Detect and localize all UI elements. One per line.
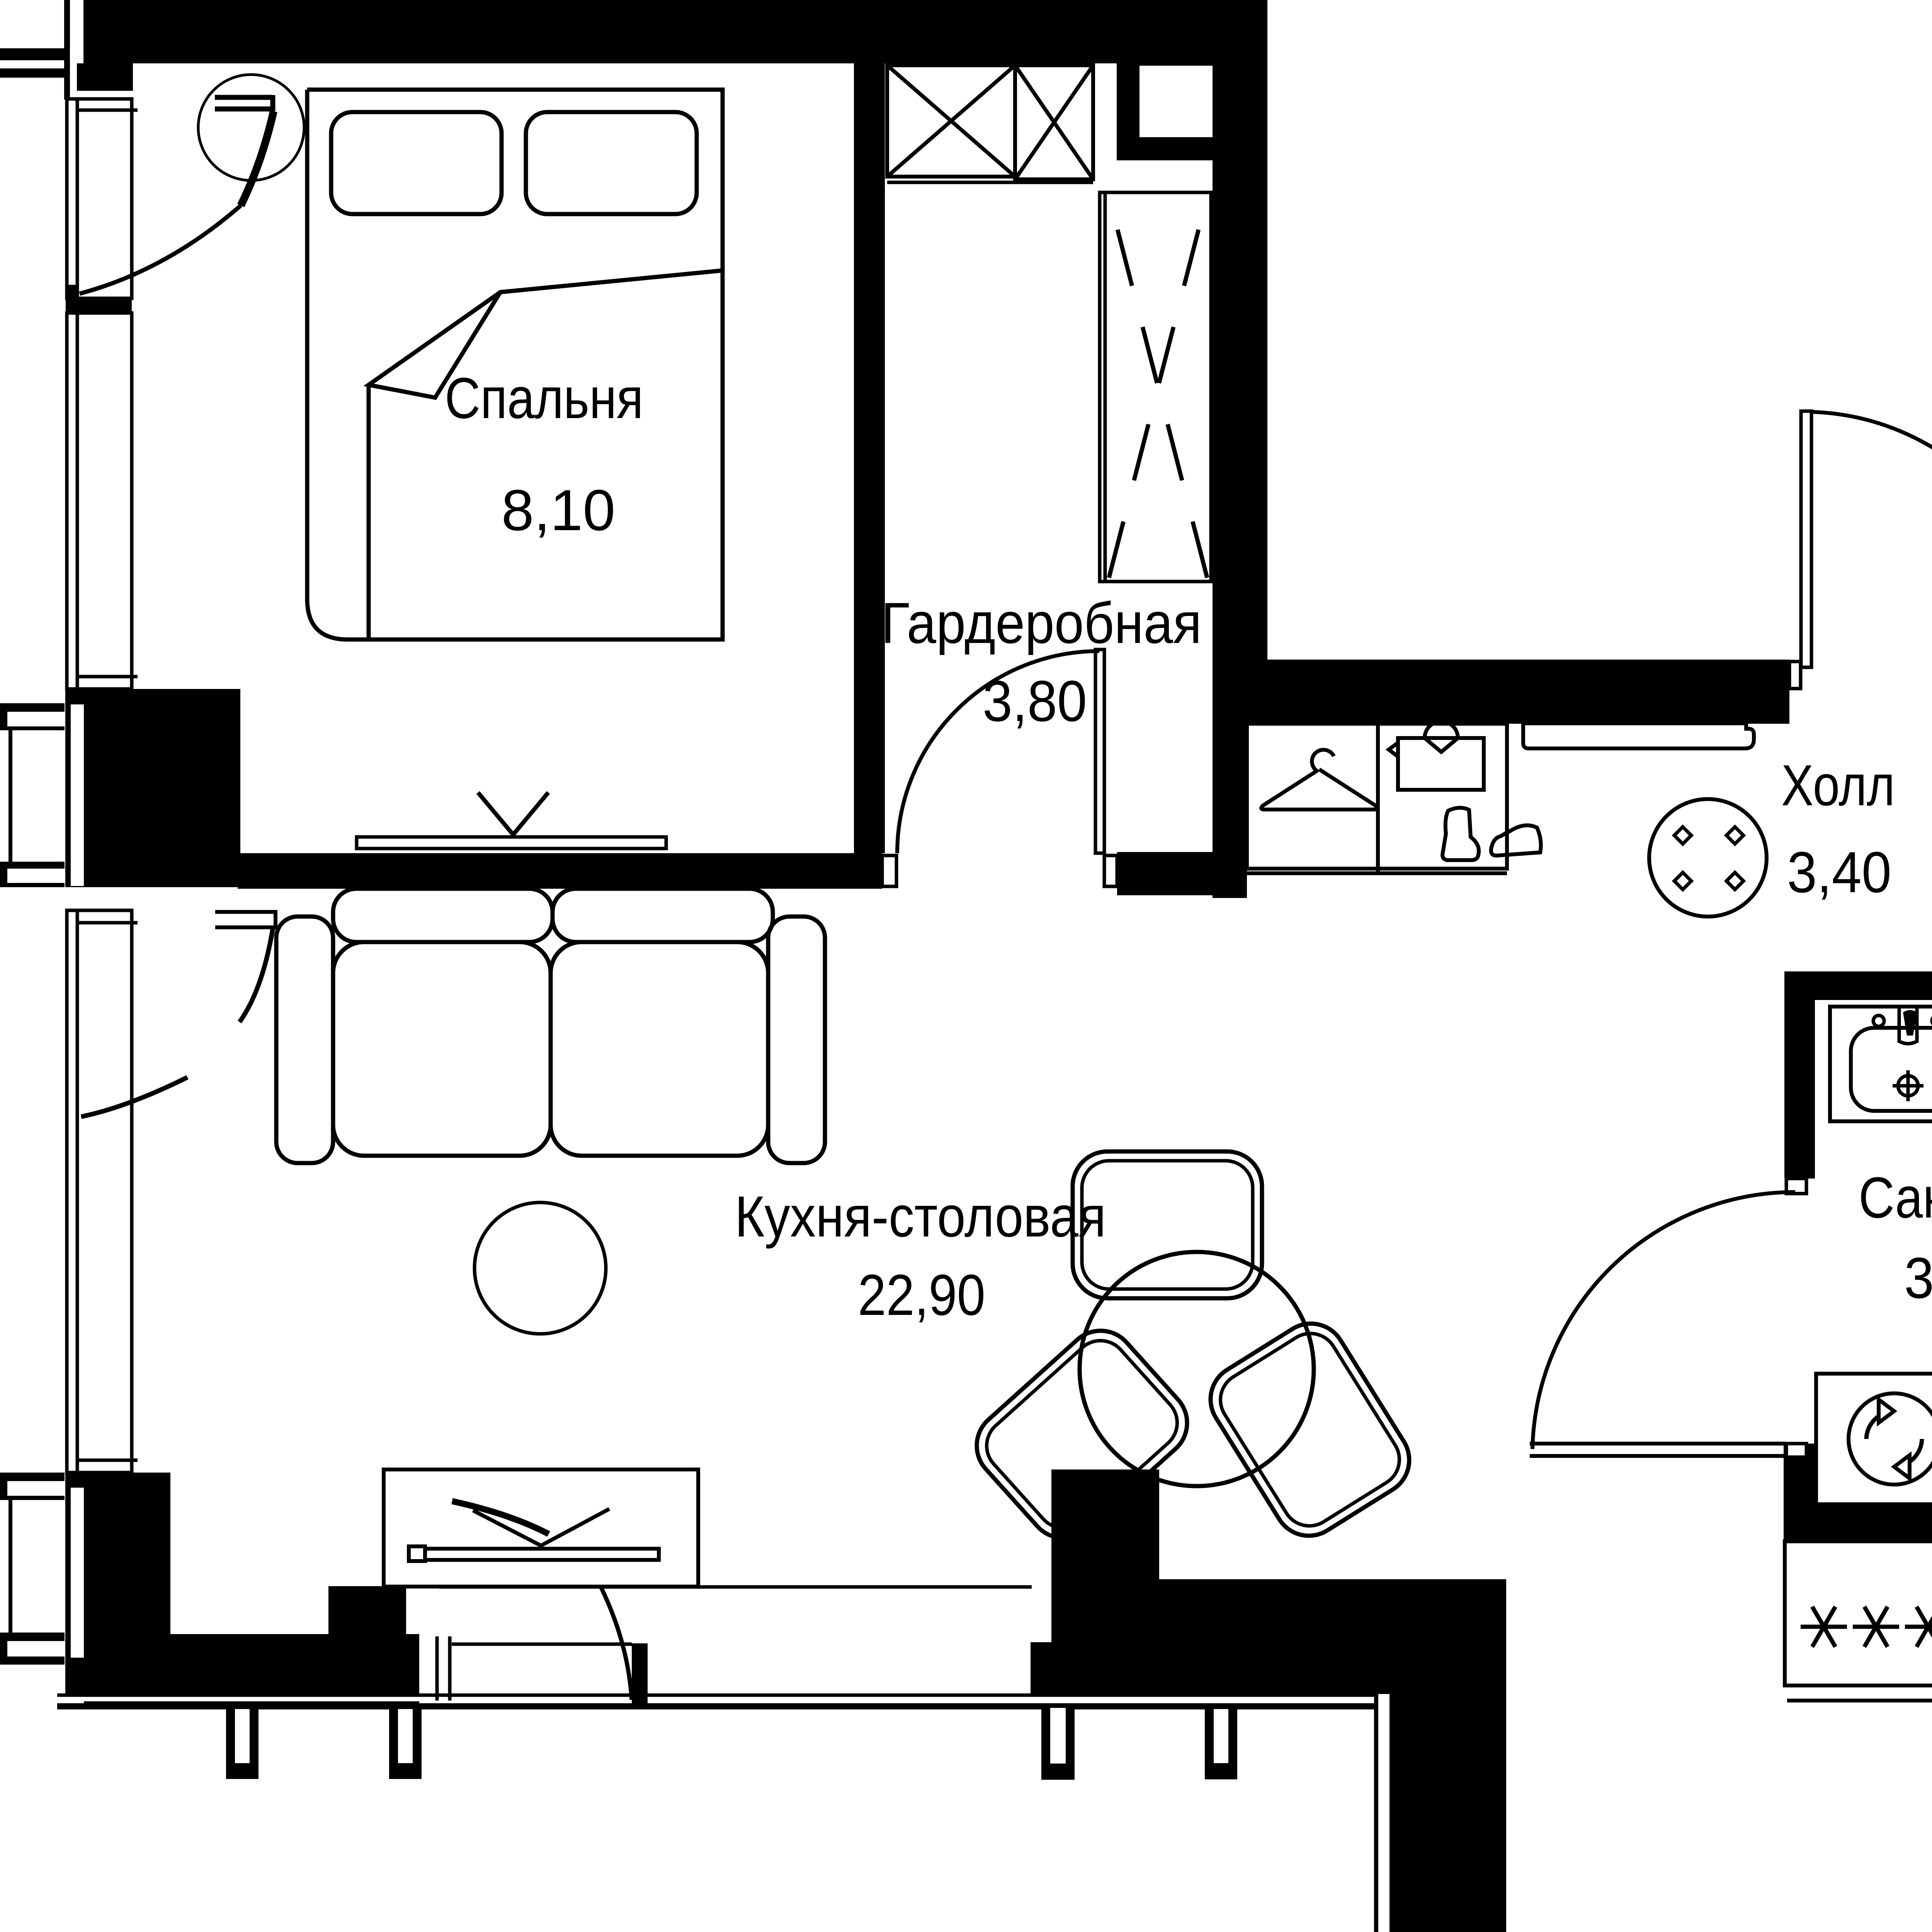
svg-text:Спальня: Спальня bbox=[445, 366, 643, 430]
svg-text:Гардеробная: Гардеробная bbox=[881, 590, 1202, 655]
svg-text:22,90: 22,90 bbox=[858, 1262, 985, 1327]
svg-text:3,80: 3,80 bbox=[983, 668, 1087, 733]
svg-text:Санузел: Санузел bbox=[1859, 1165, 1932, 1230]
svg-text:Кухня-столовая: Кухня-столовая bbox=[735, 1184, 1106, 1249]
svg-text:8,10: 8,10 bbox=[502, 478, 616, 543]
svg-text:3,40: 3,40 bbox=[1787, 840, 1891, 905]
svg-text:3,20: 3,20 bbox=[1904, 1245, 1932, 1310]
svg-text:Холл: Холл bbox=[1781, 753, 1895, 818]
